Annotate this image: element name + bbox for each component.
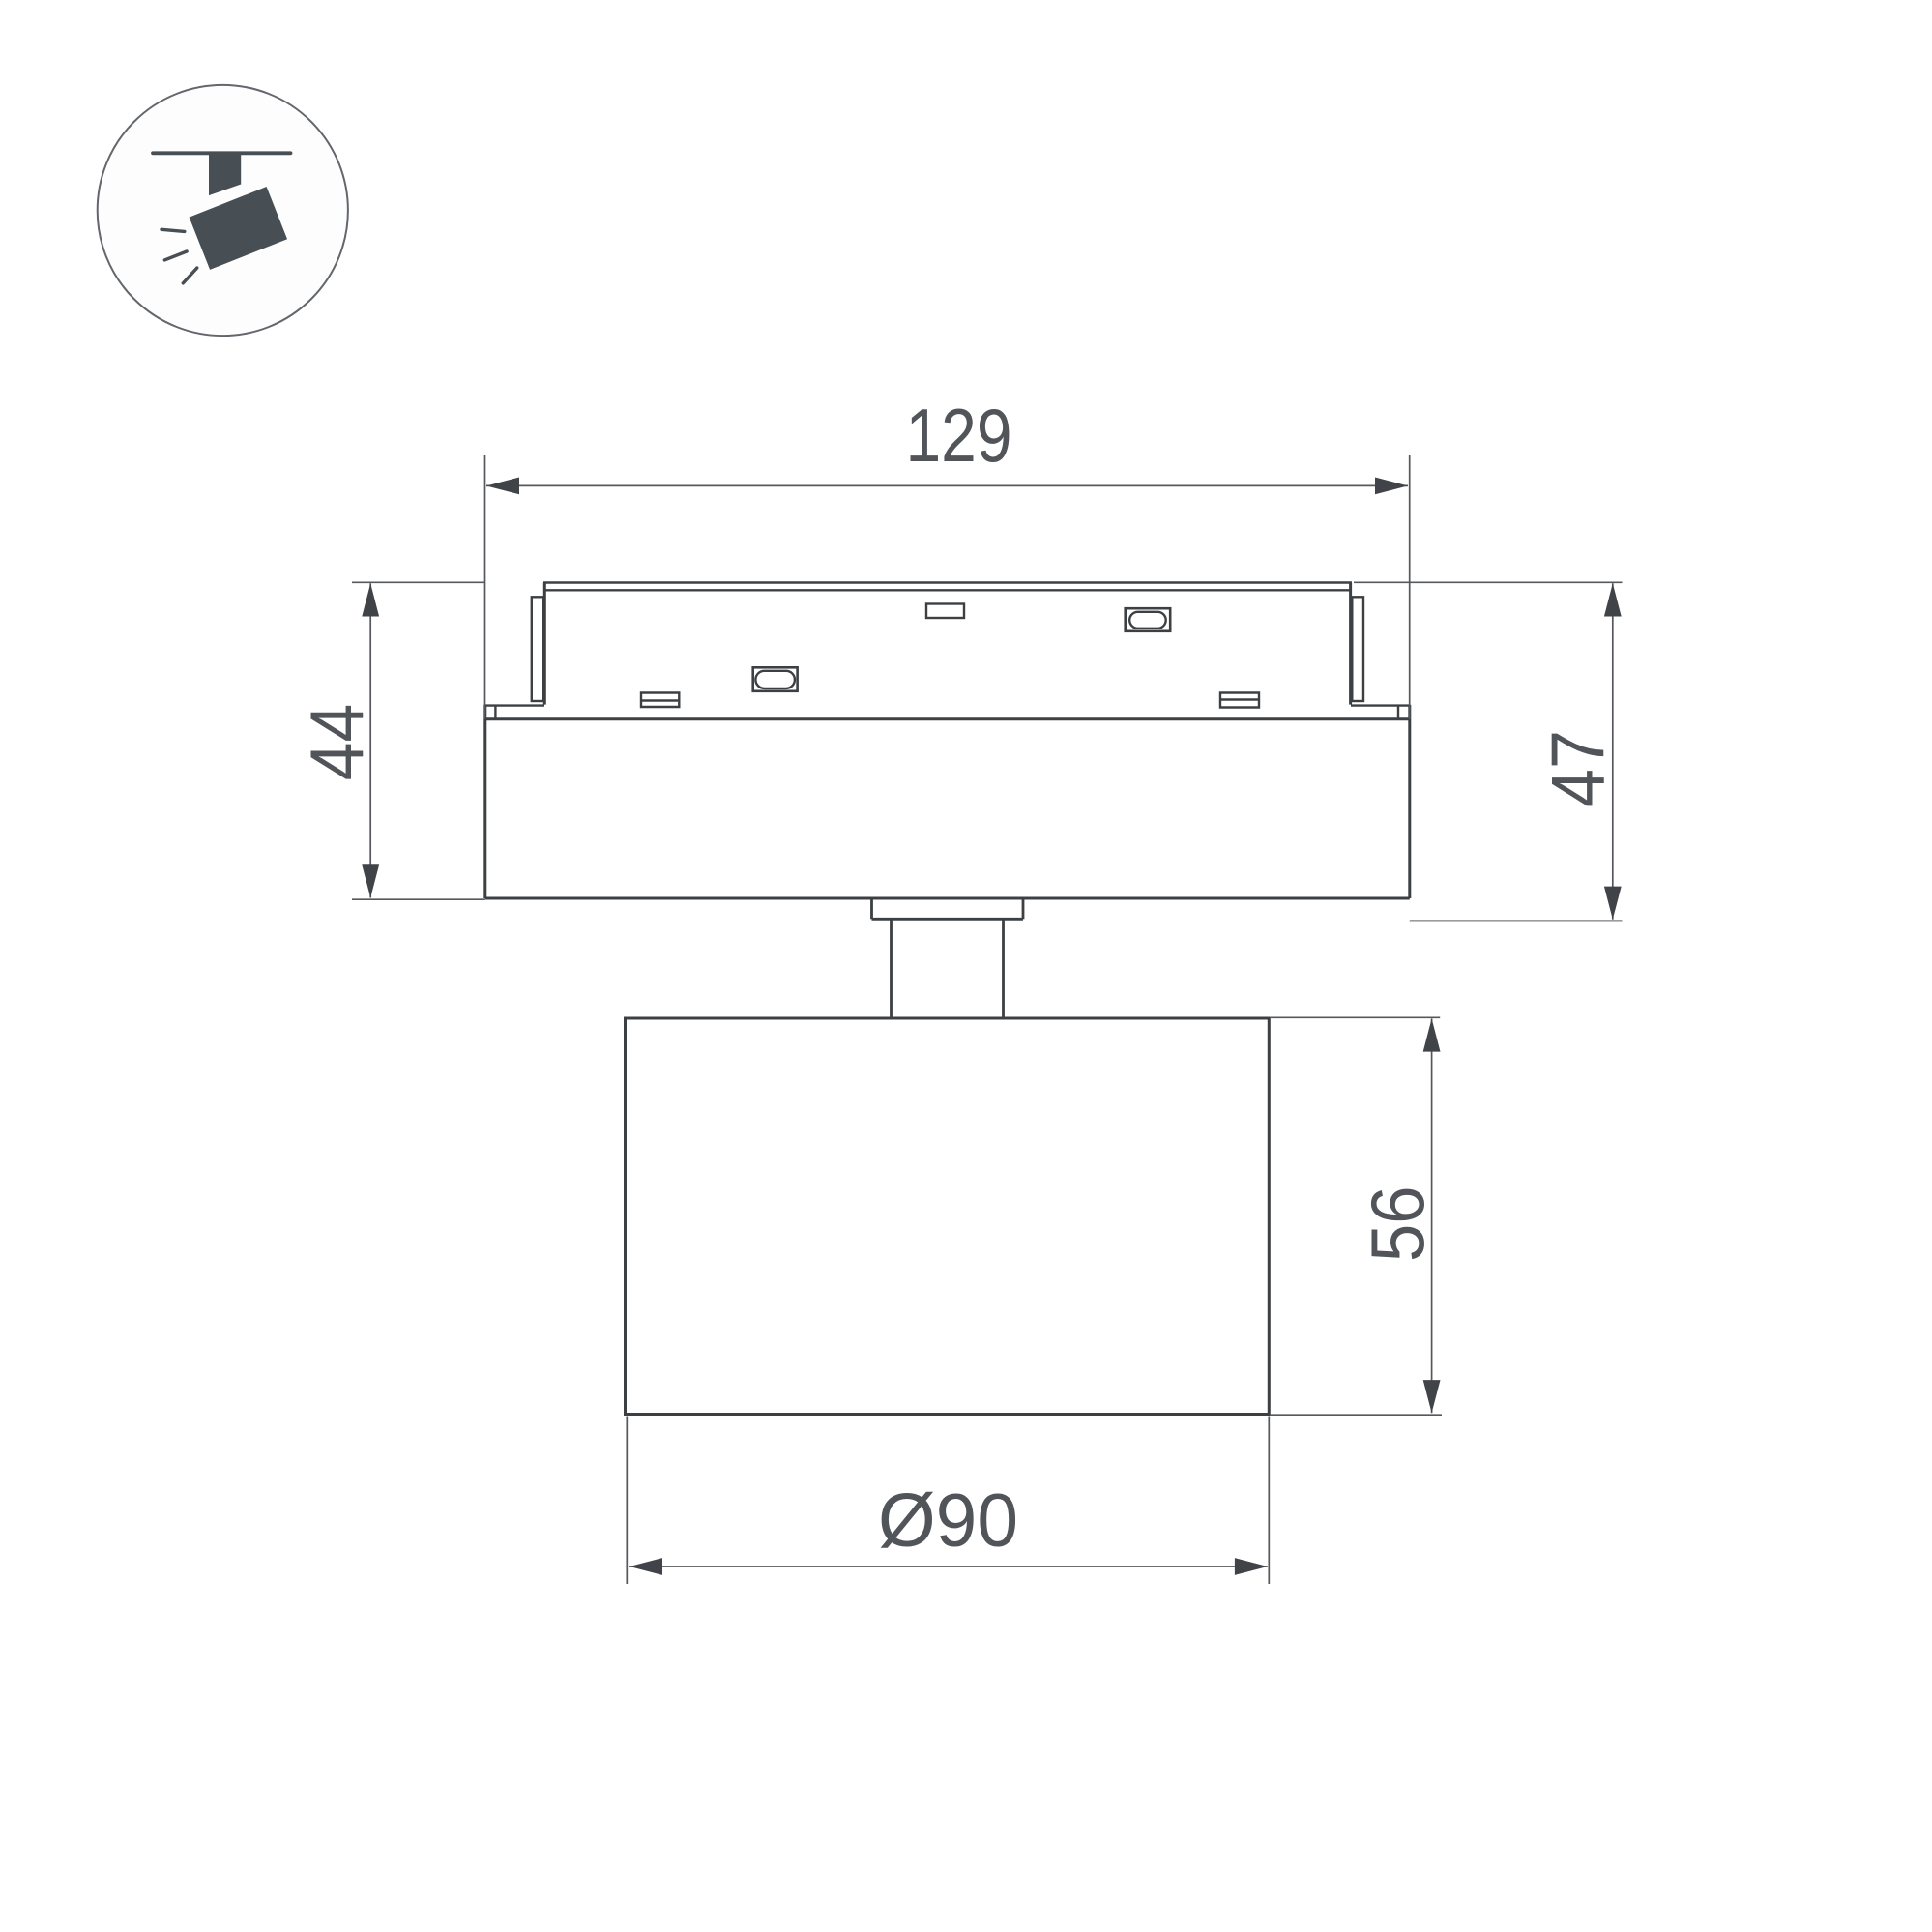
svg-text:56: 56 bbox=[1355, 1186, 1440, 1263]
svg-text:44: 44 bbox=[294, 704, 379, 781]
svg-text:Ø90: Ø90 bbox=[878, 1478, 1018, 1563]
svg-text:129: 129 bbox=[906, 393, 1012, 478]
svg-text:47: 47 bbox=[1536, 730, 1621, 807]
